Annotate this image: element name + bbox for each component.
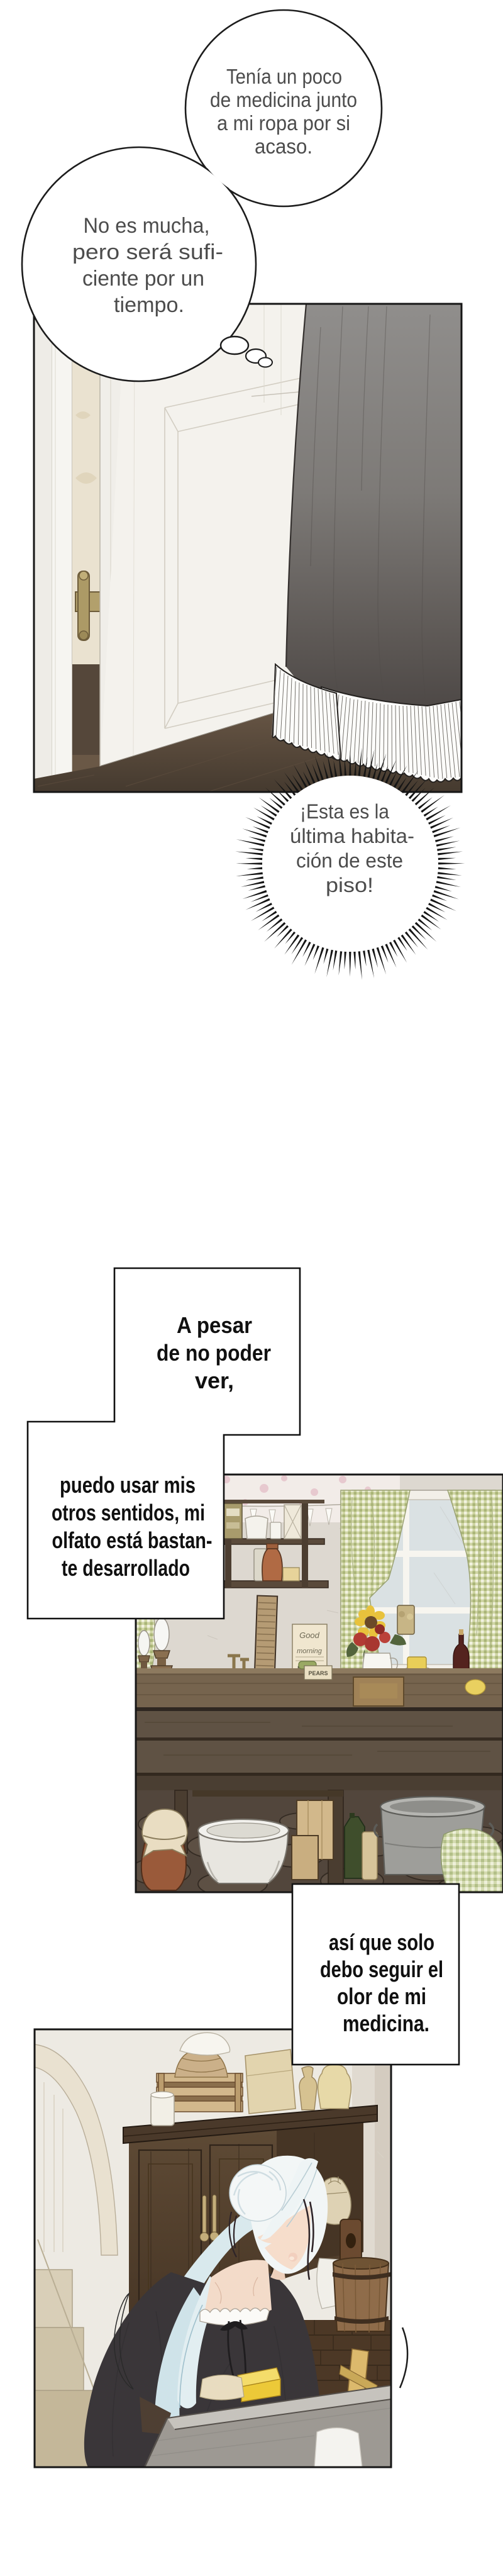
svg-text:así que solo: así que solo [329,1929,434,1955]
svg-text:puedo usar mis: puedo usar mis [60,1472,196,1498]
svg-text:última habita-: última habita- [290,825,414,847]
svg-text:de no poder: de no poder [157,1340,271,1366]
svg-text:Good: Good [299,1631,320,1640]
svg-text:pero será sufi-: pero será sufi- [72,240,223,264]
svg-text:morning: morning [297,1648,323,1655]
svg-text:a mi ropa por si: a mi ropa por si [217,111,350,135]
svg-text:A pesar: A pesar [177,1312,252,1338]
svg-text:de medicina junto: de medicina junto [210,88,357,111]
svg-text:ver,: ver, [195,1368,234,1393]
svg-text:olor de mi: olor de mi [337,1983,426,2009]
svg-text:medicina.: medicina. [343,2010,429,2036]
svg-text:PEARS: PEARS [308,1670,328,1676]
svg-text:otros sentidos, mi: otros sentidos, mi [52,1500,205,1525]
svg-text:olfato está bastan-: olfato está bastan- [52,1527,213,1553]
svg-text:acaso.: acaso. [255,135,312,158]
svg-text:debo seguir el: debo seguir el [320,1956,443,1982]
svg-text:piso!: piso! [326,874,373,896]
svg-text:No es mucha,: No es mucha, [84,214,210,238]
svg-text:ciente por un: ciente por un [82,267,204,291]
svg-text:te desarrollado: te desarrollado [62,1555,190,1581]
svg-text:tiempo.: tiempo. [114,293,184,317]
svg-text:¡Esta es la: ¡Esta es la [300,800,389,823]
svg-text:Tenía un poco: Tenía un poco [226,65,342,88]
svg-text:ción de este: ción de este [296,849,403,872]
